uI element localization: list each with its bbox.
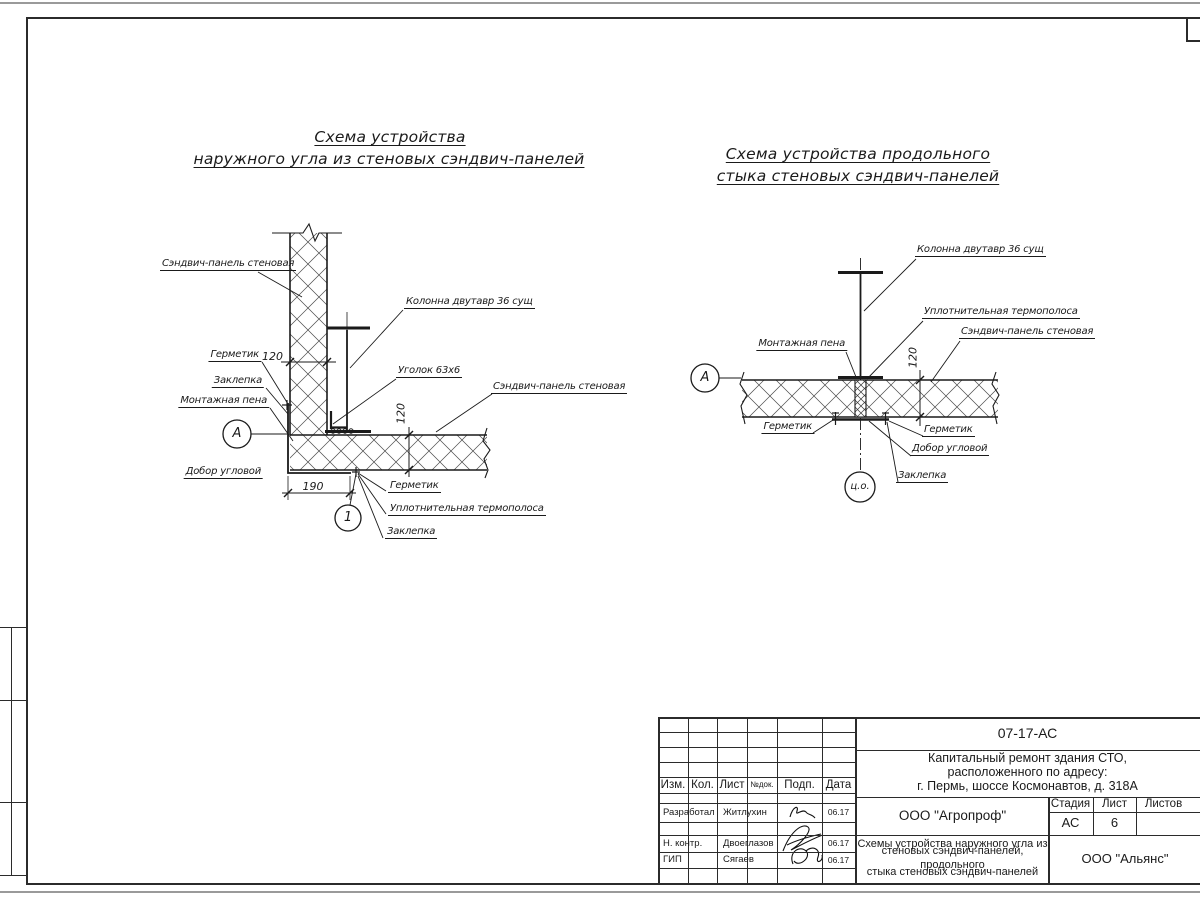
center-axis-mark: ц.о. (845, 481, 875, 492)
stamp-col-izm: Изм. (658, 777, 688, 793)
stamp-h-rev2 (658, 747, 855, 748)
signature-syagaev (792, 848, 822, 864)
stamp-doc-number: 07-17-АС (855, 718, 1200, 750)
label-sealant-left-r: Герметик (761, 421, 814, 434)
stamp-row3-date: 06.17 (822, 852, 855, 868)
stamp-h-r2 (658, 822, 855, 823)
stamp-stage-label: Стадия (1048, 797, 1093, 812)
stamp-project-line1: Капитальный ремонт здания СТО, (855, 752, 1200, 766)
stamp-sheet-label: Лист (1093, 797, 1136, 812)
label-corner-trim-left: Добор угловой (184, 466, 263, 479)
stamp-project-line2: расположенного по адресу: (855, 766, 1200, 780)
stamp-col-data: Дата (822, 777, 855, 793)
stamp-row1-name: Житлухин (719, 803, 780, 822)
label-panel-right: Сэндвич-панель стеновая (491, 381, 627, 394)
label-column-right: Колонна двутавр 36 сущ (915, 244, 1046, 257)
label-foam-left: Монтажная пена (178, 395, 269, 408)
left-diagram-title-line2: наружного угла из стеновых сэндвич-панел… (194, 150, 585, 168)
stamp-project-line3: г. Пермь, шоссе Космонавтов, д. 318А (855, 780, 1200, 794)
left-diagram-title-line1: Схема устройства (314, 128, 465, 146)
label-sealant-bottom: Герметик (388, 480, 441, 493)
signature-zhitlukhin (790, 807, 815, 818)
stamp-title-line3: стыка стеновых сэндвич-панелей (857, 866, 1048, 880)
signature-dvoeglazov (783, 826, 823, 851)
stamp-client-org: ООО "Альянс" (1050, 835, 1200, 883)
stamp-stage-value: АС (1048, 812, 1093, 835)
stamp-row3-role: ГИП (659, 852, 720, 868)
right-diagram-title-line1: Схема устройства продольного (726, 145, 990, 163)
stamp-col-list: Лист (717, 777, 747, 793)
stamp-row2-date: 06.17 (822, 835, 855, 852)
label-rivet-right: Заклепка (896, 470, 948, 483)
stamp-col-podp: Подп. (777, 777, 822, 793)
stamp-row3-name: Сягаев (719, 852, 780, 868)
joint-thermal-strip (855, 380, 866, 417)
label-corner-trim-right: Добор угловой (910, 443, 989, 456)
right-diagram-title-line2: стыка стеновых сэндвич-панелей (717, 167, 999, 185)
stamp-row2-name: Двоеглазов (719, 835, 780, 852)
stamp-row2-role: Н. контр. (659, 835, 720, 852)
dim-text-120-h: 120 (243, 350, 283, 363)
wall-panel-right-diagram (742, 380, 998, 417)
stamp-sheet-value: 6 (1093, 812, 1136, 835)
stamp-h-rev3 (658, 762, 855, 763)
label-foam-right: Монтажная пена (756, 338, 847, 351)
label-column-left: Колонна двутавр 36 сущ (404, 296, 535, 309)
stamp-h-hdr-bot (658, 793, 855, 794)
stamp-col-kol: Кол. (688, 777, 717, 793)
stamp-title-line2: стеновых сэндвич-панелей, продольного (857, 852, 1048, 866)
stamp-h-r5 (658, 868, 855, 869)
drawing-sheet: Схема устройства наружного угла из стено… (0, 0, 1200, 900)
stamp-designer-org: ООО "Агропроф" (857, 797, 1048, 835)
stamp-row1-date: 06.17 (822, 803, 855, 822)
dim-text-120-v: 120 (395, 394, 408, 434)
stamp-col-doc: №док. (747, 777, 777, 793)
label-thermal-strip-right: Уплотнительная термополоса (922, 306, 1080, 319)
node-mark-a-left: А (223, 426, 251, 441)
label-rivet-bottom: Заклепка (385, 526, 437, 539)
label-sealant-right-r: Герметик (922, 424, 975, 437)
dim-text-190: 190 (293, 480, 333, 493)
label-angle: Уголок 63х6 (396, 365, 462, 378)
i-beam-column-right (838, 273, 883, 378)
detail-mark-1: 1 (334, 510, 362, 525)
stamp-row1-role: Разработал (659, 803, 720, 822)
dim-text-120-right: 120 (907, 338, 920, 378)
stamp-sheets-label: Листов (1136, 797, 1191, 812)
label-panel-top: Сэндвич-панель стеновая (160, 258, 296, 271)
node-mark-a-right: А (691, 370, 719, 385)
stamp-h-rev1 (658, 732, 855, 733)
label-rivet-top: Заклепка (212, 375, 264, 388)
right-diagram-geometry (691, 258, 999, 502)
wall-panel-horizontal (290, 435, 487, 470)
label-thermal-strip-left: Уплотнительная термополоса (388, 503, 546, 516)
label-panel-right-diagram: Сэндвич-панель стеновая (959, 326, 1095, 339)
